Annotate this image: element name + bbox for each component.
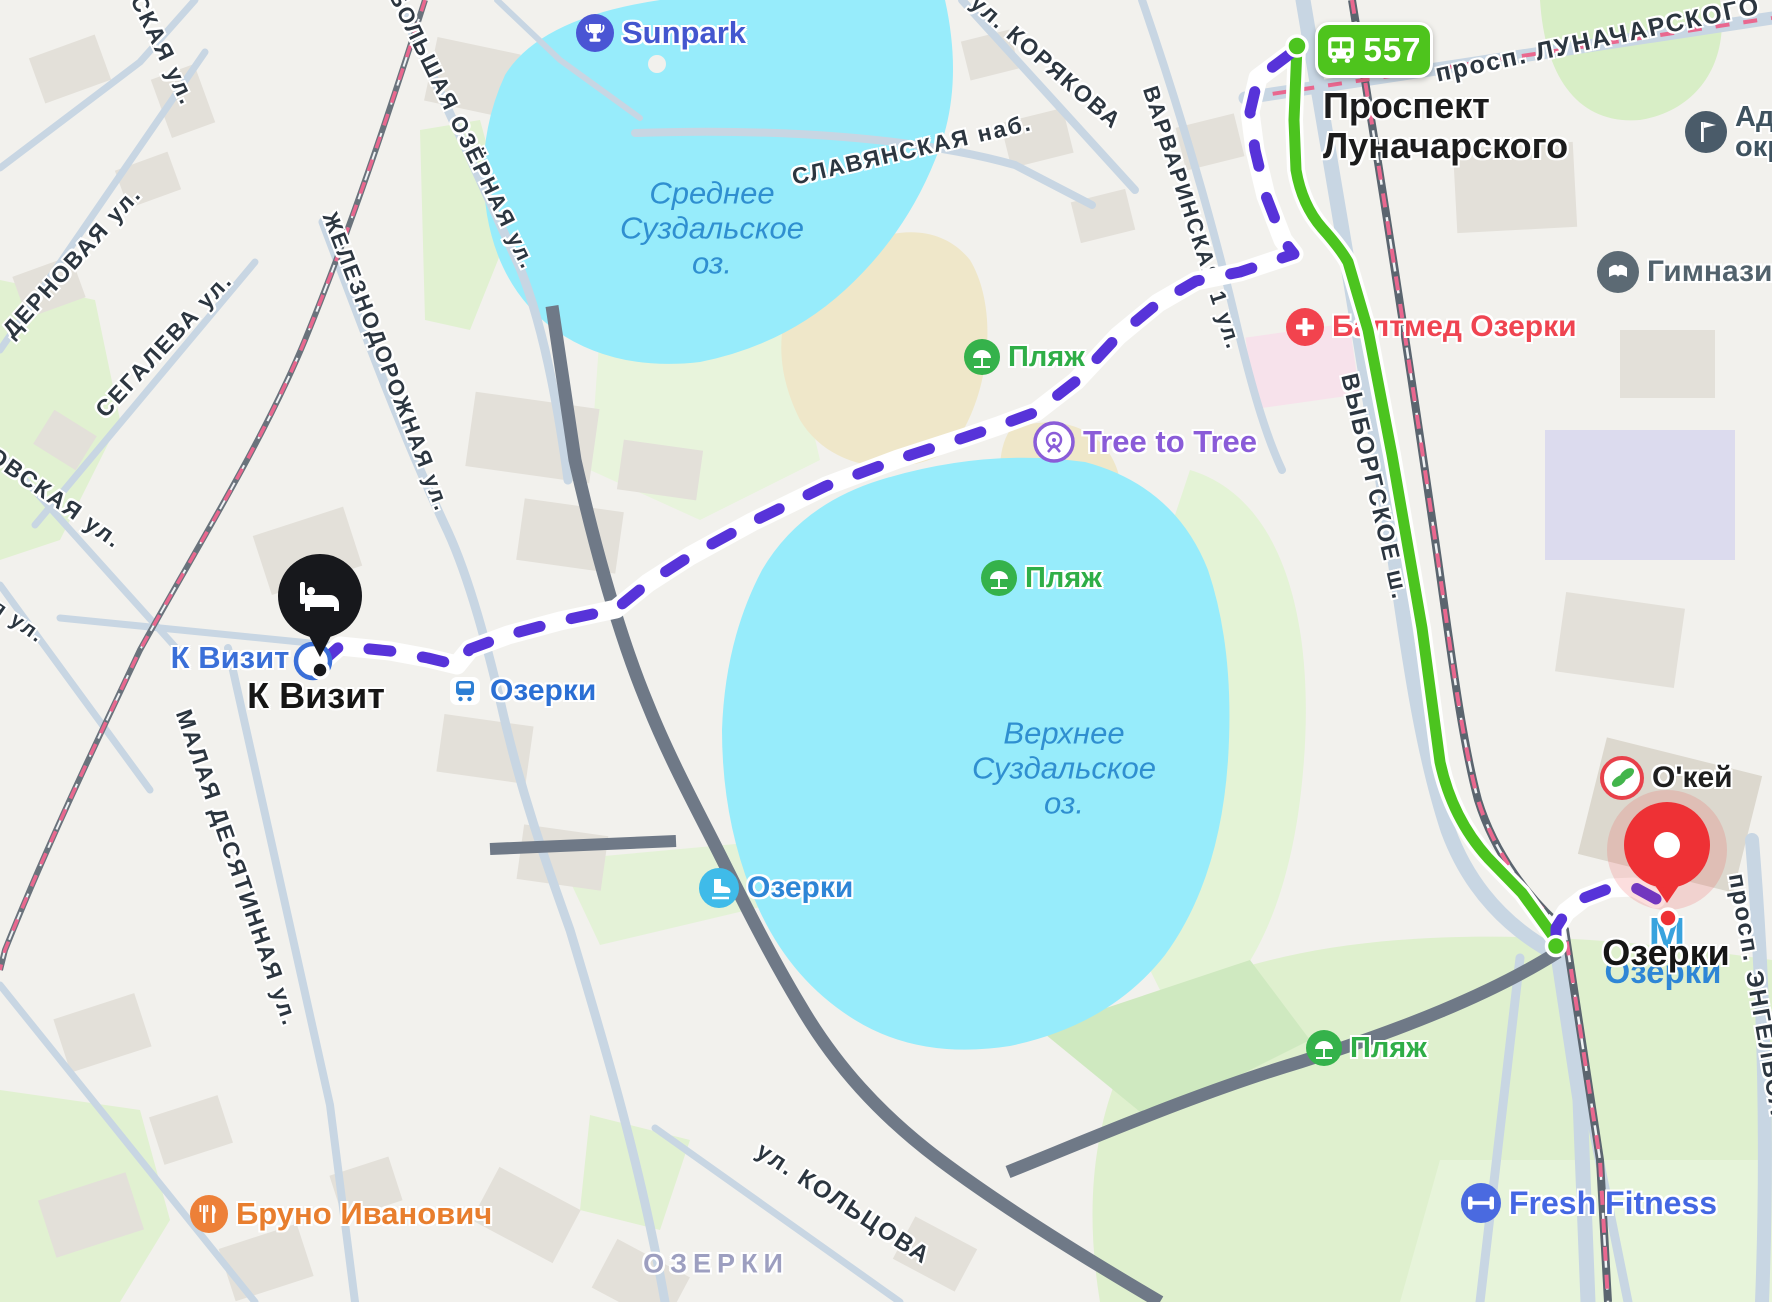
dumbbell-icon (1461, 1183, 1501, 1223)
bus-icon (1326, 36, 1356, 64)
beach-umbrella-icon (1306, 1030, 1342, 1066)
metro-name-label: Озерки (1602, 932, 1730, 974)
origin-stop-label: Проспект Луначарского (1323, 86, 1568, 166)
lake-upper-label: Верхнее Суздальское оз. (972, 716, 1156, 821)
poi-ozerki-rail[interactable]: Озерки (448, 674, 596, 708)
poi-baltmed[interactable]: Балтмед Озерки (1286, 308, 1577, 346)
ice-skate-icon (699, 868, 739, 908)
restaurant-icon (190, 1195, 228, 1233)
destination-name-label: К Визит (247, 675, 385, 717)
poi-beach-2[interactable]: Пляж (981, 560, 1102, 596)
district-ozerki-label: ОЗЕРКИ (643, 1249, 789, 1280)
poi-ozerki-rink[interactable]: Озерки (699, 868, 853, 908)
bus-route-number: 557 (1363, 31, 1421, 69)
poi-beach-3[interactable]: Пляж (1306, 1030, 1427, 1066)
poi-k-vizit-label[interactable]: К Визит (171, 640, 290, 676)
destination-dot (312, 662, 328, 678)
poi-tree-to-tree[interactable]: Tree to Tree (1033, 421, 1257, 463)
trophy-icon (576, 14, 614, 52)
origin-dot (1659, 909, 1677, 927)
train-station-icon (448, 675, 482, 707)
flag-icon (1685, 111, 1727, 153)
lake-middle-label: Среднее Суздальское оз. (620, 176, 804, 281)
beach-umbrella-icon (964, 339, 1000, 375)
bus-route-badge[interactable]: 557 (1315, 22, 1433, 78)
island (648, 55, 666, 73)
poi-fresh-fitness[interactable]: Fresh Fitness (1461, 1183, 1717, 1223)
adventure-park-icon (1033, 421, 1075, 463)
poi-bruno[interactable]: Бруно Иванович (190, 1195, 492, 1233)
poi-beach-1[interactable]: Пляж (964, 339, 1085, 375)
map-canvas[interactable]: СКАЯ ул. ДЕРНОВАЯ ул. СЕГАЛЕВА ул. ОВСКА… (0, 0, 1772, 1302)
poi-sunpark[interactable]: Sunpark (576, 14, 746, 52)
okey-leaves-icon (1600, 756, 1644, 800)
medical-cross-icon (1286, 308, 1324, 346)
beach-umbrella-icon (981, 560, 1017, 596)
school-icon (1597, 251, 1639, 293)
poi-gymnasium[interactable]: Гимнази (1597, 251, 1772, 293)
poi-admin[interactable]: Ад окр (1685, 102, 1772, 162)
